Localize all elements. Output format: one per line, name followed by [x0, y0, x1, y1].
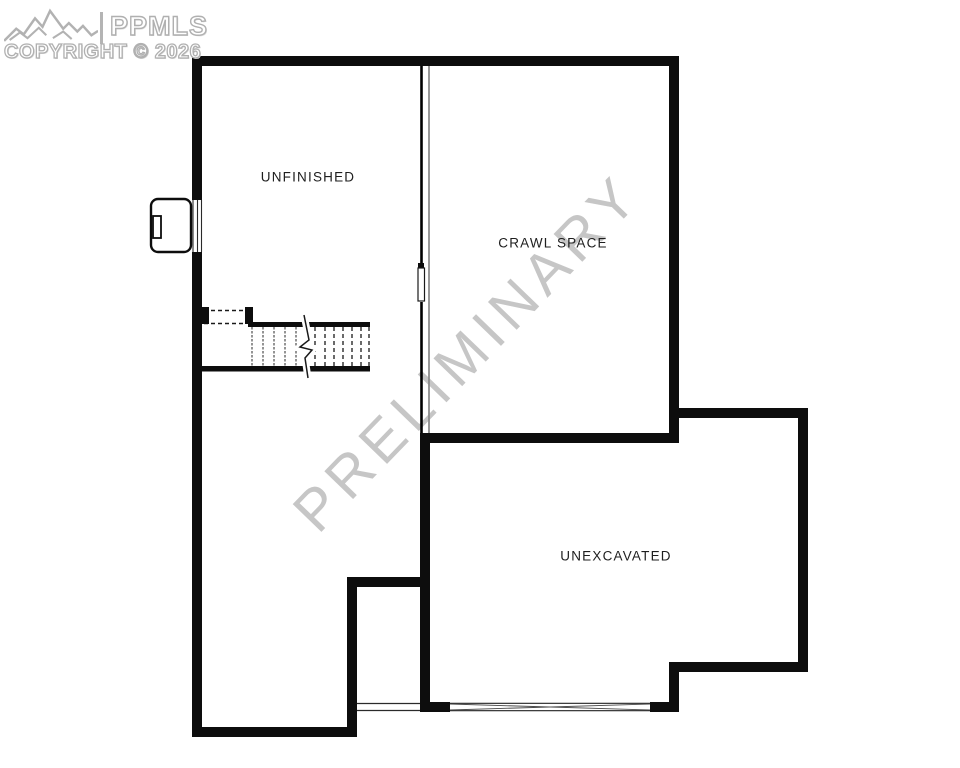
staircase: [202, 307, 370, 378]
wall-bumpout-bottom: [679, 662, 808, 672]
window-well-handle: [153, 216, 161, 238]
floor-plan-drawing: [0, 0, 960, 768]
window-opening-symbol: [450, 703, 650, 710]
stair-treads-dashed: [315, 327, 369, 366]
door-jamb: [418, 263, 424, 268]
window-glazing-lines: [193, 200, 202, 252]
partition-door: [418, 268, 425, 301]
stair-cap-left: [202, 307, 209, 324]
stair-stringer-bottom: [202, 366, 370, 372]
wall-crawl-bottom: [420, 433, 679, 443]
exterior-walls: [192, 56, 808, 737]
wall-left-lower: [192, 252, 202, 737]
window-well: [151, 199, 202, 252]
interior-partition-wall: [418, 66, 429, 433]
wall-top: [192, 56, 679, 66]
logo-brand-text: PPMLS: [110, 8, 208, 44]
stair-treads-solid: [252, 327, 296, 366]
logo-divider: [100, 12, 103, 44]
mountain-range-icon: [4, 4, 98, 44]
stair-cap-right: [245, 307, 253, 324]
floorplan-page: PPMLS COPYRIGHT © 2026 PRELIMINARY: [0, 0, 960, 768]
wall-step-vertical: [347, 577, 357, 737]
wall-left-upper: [192, 56, 202, 200]
wall-bottom-left-stub: [420, 702, 450, 712]
stair-dashed-landing: [204, 311, 246, 324]
wall-crawl-right: [669, 56, 679, 443]
wall-bottom-left: [192, 727, 357, 737]
logo-row: PPMLS: [4, 4, 208, 44]
wall-bumpout-right: [798, 408, 808, 672]
ppmls-logo-watermark: PPMLS COPYRIGHT © 2026: [4, 4, 208, 62]
room-label-unfinished: UNFINISHED: [261, 170, 356, 185]
porch-edge-lines: [357, 704, 420, 711]
wall-step-horizontal: [347, 577, 430, 587]
room-label-crawl-space: CRAWL SPACE: [498, 236, 607, 251]
wall-bumpout-top: [679, 408, 808, 418]
wall-bottom-right-stub: [650, 702, 679, 712]
copyright-text: COPYRIGHT © 2026: [4, 42, 208, 62]
room-label-unexcavated: UNEXCAVATED: [560, 549, 671, 564]
